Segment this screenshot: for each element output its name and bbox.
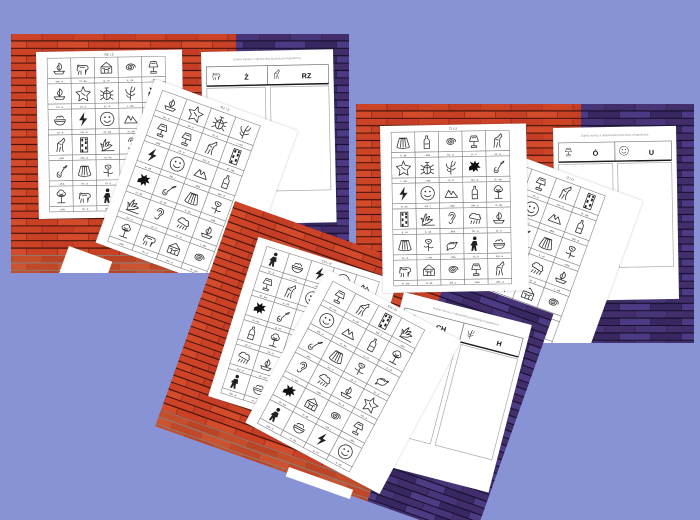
svg-text:ch...b: ch...b [448,178,455,182]
svg-text:...eka: ...eka [424,153,431,157]
svg-text:kol...j: kol...j [425,204,432,208]
svg-text:k...yk: k...yk [400,153,407,157]
svg-text:ch...b: ch...b [57,130,64,134]
svg-text:ch...b: ch...b [473,254,480,258]
svg-text:pi...o: pi...o [81,104,87,108]
svg-text:k...yk: k...yk [127,77,134,81]
svg-text:m...ka: m...ka [79,78,87,82]
svg-text:w...ek: w...ek [128,129,135,133]
svg-text:dr...wa: dr...wa [104,129,112,133]
svg-text:t...wa: t...wa [127,103,134,107]
svg-text:w...ek: w...ek [426,281,433,285]
svg-text:...aba: ...aba [473,280,480,284]
svg-text:m...ka: m...ka [104,155,112,159]
svg-text:dr...wa: dr...wa [494,177,502,181]
svg-text:...eka: ...eka [449,229,456,233]
svg-text:bu...a: bu...a [81,181,88,185]
svg-text:mu...a: mu...a [496,255,504,258]
svg-text:k...yk: k...yk [425,230,432,234]
svg-text:sz...a: sz...a [104,105,111,108]
svg-text:sz...a: sz...a [495,153,502,156]
svg-text:...oda: ...oda [424,178,431,182]
svg-text:bu...a: bu...a [472,229,479,233]
svg-text:wie...a: wie...a [496,280,504,284]
svg-text:pi...o: pi...o [105,180,111,184]
svg-text:ch...b: ch...b [82,206,89,210]
svg-text:wie...a: wie...a [471,203,479,207]
svg-text:pi...o: pi...o [496,228,502,232]
svg-text:g...ra: g...ra [402,230,409,234]
svg-text:wie...a: wie...a [80,155,88,159]
svg-text:Ó i U: Ó i U [449,126,457,131]
svg-text:t...wa: t...wa [426,255,433,259]
svg-text:t...wa: t...wa [401,179,408,183]
svg-text:bu...a: bu...a [56,104,63,108]
svg-text:bu...a: bu...a [447,152,454,156]
svg-text:Ż: Ż [244,72,249,81]
svg-text:...aba: ...aba [57,156,64,160]
svg-text:...eka: ...eka [58,181,65,185]
svg-text:mu...a: mu...a [80,131,88,134]
svg-text:kol...j: kol...j [450,280,457,284]
svg-text:...aba: ...aba [448,204,455,208]
svg-text:w...ek: w...ek [401,204,408,208]
svg-text:pi...o: pi...o [471,152,477,156]
svg-text:Dopisz wyrazy z odpowiednią tr: Dopisz wyrazy z odpowiednią trudnością o… [233,56,301,61]
svg-text:m...ka: m...ka [495,203,503,207]
svg-text:RZ: RZ [301,71,311,80]
svg-text:dr...wa: dr...wa [402,281,410,285]
svg-text:sz...a: sz...a [402,257,409,260]
svg-text:...oda: ...oda [58,207,65,211]
svg-text:...oda: ...oda [449,255,456,259]
svg-text:mu...a: mu...a [471,179,479,182]
svg-text:RZ i Ż: RZ i Ż [104,51,113,56]
svg-text:g...ra: g...ra [104,78,111,82]
svg-text:wie...a: wie...a [56,79,64,83]
svg-text:RZ i Ż: RZ i Ż [220,104,230,112]
